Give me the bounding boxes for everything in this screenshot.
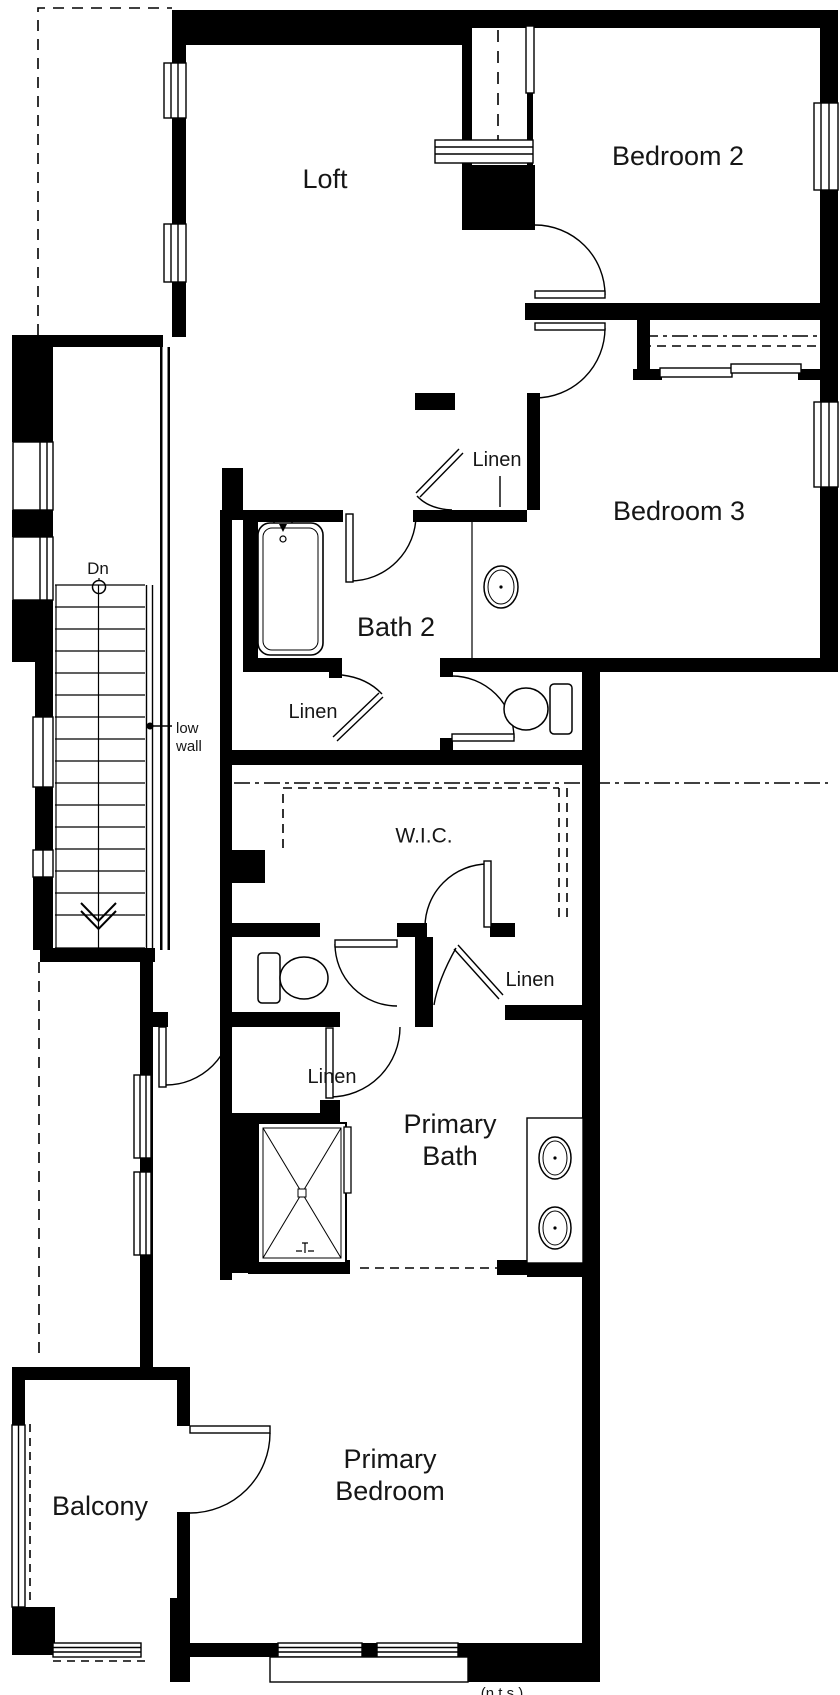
bedroom3-closet-sliding-doors bbox=[660, 364, 801, 377]
primary-bedroom-window-2 bbox=[377, 1643, 458, 1657]
bedroom2-closet-front bbox=[435, 140, 533, 163]
stair-west-window-3 bbox=[33, 717, 53, 787]
shower-drain bbox=[298, 1189, 306, 1197]
window-bay bbox=[270, 1657, 468, 1682]
open-below-dashed-line bbox=[38, 8, 172, 335]
primary-wc-door bbox=[335, 940, 397, 1006]
bathtub bbox=[258, 515, 323, 655]
primary-bath-line2: Bath bbox=[404, 1141, 497, 1173]
room-label-bath2: Bath 2 bbox=[357, 612, 435, 644]
hall-west-window-2 bbox=[134, 1172, 151, 1255]
hall-west-window bbox=[134, 1075, 151, 1158]
stair-west-window-4 bbox=[33, 850, 53, 877]
stair-west-window-2 bbox=[13, 537, 53, 600]
linen-top-door bbox=[416, 449, 463, 510]
room-label-bedroom2: Bedroom 2 bbox=[612, 141, 744, 173]
bedroom2-door bbox=[535, 225, 605, 298]
wic-door bbox=[425, 861, 491, 927]
bedroom3-window bbox=[814, 402, 838, 487]
shower bbox=[258, 1123, 351, 1263]
clipped-caption: (n.t.s.) bbox=[481, 1685, 524, 1695]
room-label-loft: Loft bbox=[302, 164, 347, 196]
windows bbox=[12, 26, 838, 1682]
primary-toilet bbox=[258, 953, 328, 1003]
bath2-door bbox=[346, 514, 416, 582]
closet-label-linen-top: Linen bbox=[473, 449, 522, 473]
primary-bath-line1: Primary bbox=[404, 1109, 497, 1141]
room-label-primary-bedroom: Primary Bedroom bbox=[335, 1444, 445, 1508]
shower-door bbox=[344, 1127, 351, 1193]
linen-right-door bbox=[434, 945, 503, 1005]
low-wall-label: low wall bbox=[176, 720, 202, 755]
room-label-wic: W.I.C. bbox=[395, 825, 452, 850]
loft-west-window-2 bbox=[164, 224, 186, 282]
primary-bedroom-line2: Bedroom bbox=[335, 1476, 445, 1508]
primary-bedroom-line1: Primary bbox=[335, 1444, 445, 1476]
bath2-toilet bbox=[504, 684, 572, 734]
bedroom2-closet-door bbox=[526, 26, 534, 93]
bedroom3-door bbox=[535, 323, 605, 398]
loft-west-window bbox=[164, 63, 186, 118]
room-label-balcony: Balcony bbox=[52, 1491, 148, 1523]
room-label-primary-bath: Primary Bath bbox=[404, 1109, 497, 1173]
floor-plan: Loft Bedroom 2 Bedroom 3 Bath 2 W.I.C. L… bbox=[0, 0, 840, 1695]
balcony-door bbox=[190, 1426, 270, 1513]
stairs-down-label: Dn bbox=[87, 559, 109, 579]
low-wall-leader-dot bbox=[147, 723, 153, 729]
room-label-bedroom3: Bedroom 3 bbox=[613, 496, 745, 528]
tub-drain bbox=[280, 536, 286, 542]
closet-label-linen-mid: Linen bbox=[289, 701, 338, 725]
bedroom2-window bbox=[814, 103, 838, 190]
balcony-left-railing bbox=[12, 1425, 25, 1607]
primary-bedroom-window bbox=[278, 1643, 362, 1657]
low-wall-line1: low bbox=[176, 720, 202, 738]
primary-vanity bbox=[527, 1118, 583, 1263]
balcony-bottom-railing bbox=[53, 1643, 141, 1657]
stair-west-window bbox=[13, 442, 53, 510]
linen-mid-door bbox=[333, 675, 383, 741]
closet-label-linen-lower: Linen bbox=[308, 1066, 357, 1090]
bath2-sink bbox=[484, 566, 518, 608]
closet-label-linen-right: Linen bbox=[506, 969, 555, 993]
staircase bbox=[55, 578, 153, 950]
low-wall-line2: wall bbox=[176, 738, 202, 756]
